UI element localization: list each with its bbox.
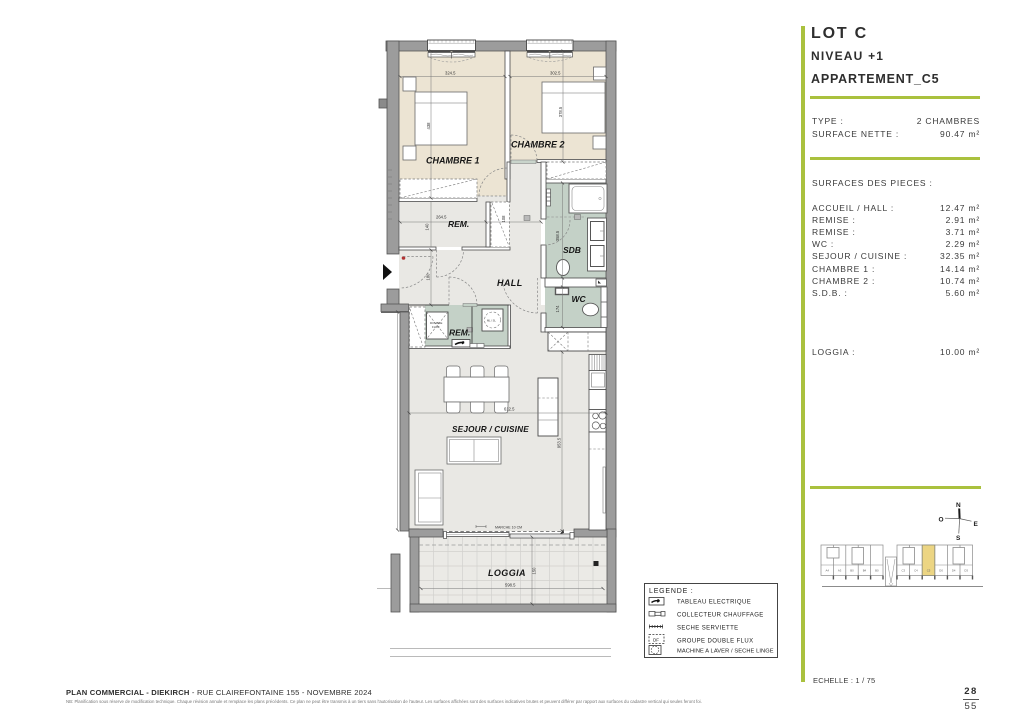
- svg-text:378.5: 378.5: [558, 106, 563, 117]
- svg-text:O: O: [939, 517, 944, 524]
- svg-text:302.5: 302.5: [550, 71, 561, 76]
- svg-text:REM.: REM.: [448, 219, 469, 229]
- svg-text:MACHINE A LAVER / SECHE LINGE: MACHINE A LAVER / SECHE LINGE: [677, 648, 774, 654]
- svg-text:C3: C3: [902, 569, 906, 573]
- svg-text:C5: C5: [927, 569, 931, 573]
- svg-text:E: E: [974, 521, 979, 528]
- svg-text:N: N: [956, 502, 961, 509]
- svg-text:LOGGIA: LOGGIA: [488, 568, 526, 578]
- svg-text:LEGENDE :: LEGENDE :: [649, 588, 694, 595]
- svg-text:SEJOUR / CUISINE: SEJOUR / CUISINE: [452, 425, 529, 434]
- svg-text:C4: C4: [914, 569, 918, 573]
- svg-text:REM.: REM.: [449, 328, 470, 338]
- svg-text:COLLECTEUR CHAUFFAGE: COLLECTEUR CHAUFFAGE: [677, 612, 764, 618]
- svg-text:WC: WC: [572, 294, 587, 304]
- svg-text:B4: B4: [863, 569, 867, 573]
- svg-text:150: 150: [532, 567, 537, 575]
- svg-text:324.5: 324.5: [445, 71, 456, 76]
- svg-text:SECHE SERVIETTE: SECHE SERVIETTE: [677, 625, 739, 631]
- svg-text:108: 108: [501, 215, 506, 223]
- svg-text:D3: D3: [964, 569, 968, 573]
- svg-text:B0: B0: [875, 569, 879, 573]
- svg-text:GROUPE DOUBLE FLUX: GROUPE DOUBLE FLUX: [677, 638, 754, 644]
- svg-text:B0: B0: [850, 569, 854, 573]
- svg-text:140: 140: [425, 223, 430, 231]
- svg-text:438: 438: [426, 122, 431, 130]
- svg-text:180: 180: [426, 273, 431, 281]
- svg-text:FLUX: FLUX: [432, 325, 440, 329]
- svg-text:598.5: 598.5: [505, 583, 516, 588]
- svg-text:174: 174: [555, 305, 560, 313]
- svg-text:953.5: 953.5: [557, 437, 562, 448]
- svg-text:MARCHE 10 CM: MARCHE 10 CM: [495, 526, 522, 530]
- svg-text:264.5: 264.5: [436, 215, 447, 220]
- svg-text:358.5: 358.5: [555, 230, 560, 241]
- svg-text:A3: A3: [838, 569, 842, 573]
- svg-text:612.5: 612.5: [504, 407, 515, 412]
- svg-text:HALL: HALL: [497, 278, 523, 288]
- svg-text:A4: A4: [825, 569, 829, 573]
- svg-text:DF: DF: [653, 637, 659, 642]
- svg-text:D4: D4: [952, 569, 956, 573]
- svg-text:TABLEAU ELECTRIQUE: TABLEAU ELECTRIQUE: [677, 599, 751, 605]
- svg-text:CHAMBRE 1: CHAMBRE 1: [426, 156, 480, 166]
- svg-text:SDB: SDB: [563, 245, 581, 255]
- svg-text:CHAMBRE 2: CHAMBRE 2: [511, 140, 565, 150]
- svg-text:D0: D0: [939, 569, 943, 573]
- svg-text:ML / SL: ML / SL: [487, 319, 496, 323]
